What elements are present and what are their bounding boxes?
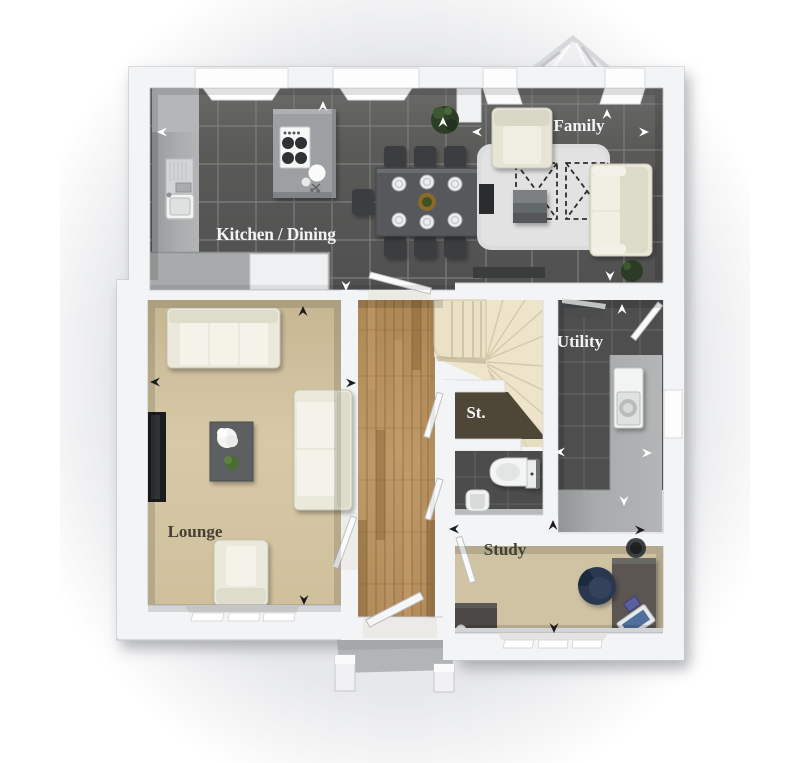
svg-text:Utility: Utility: [557, 332, 604, 351]
svg-text:Family: Family: [554, 116, 605, 135]
svg-text:St.: St.: [466, 403, 485, 422]
svg-text:Study: Study: [484, 540, 527, 559]
svg-text:Kitchen / Dining: Kitchen / Dining: [216, 224, 336, 244]
svg-text:Lounge: Lounge: [168, 522, 223, 541]
